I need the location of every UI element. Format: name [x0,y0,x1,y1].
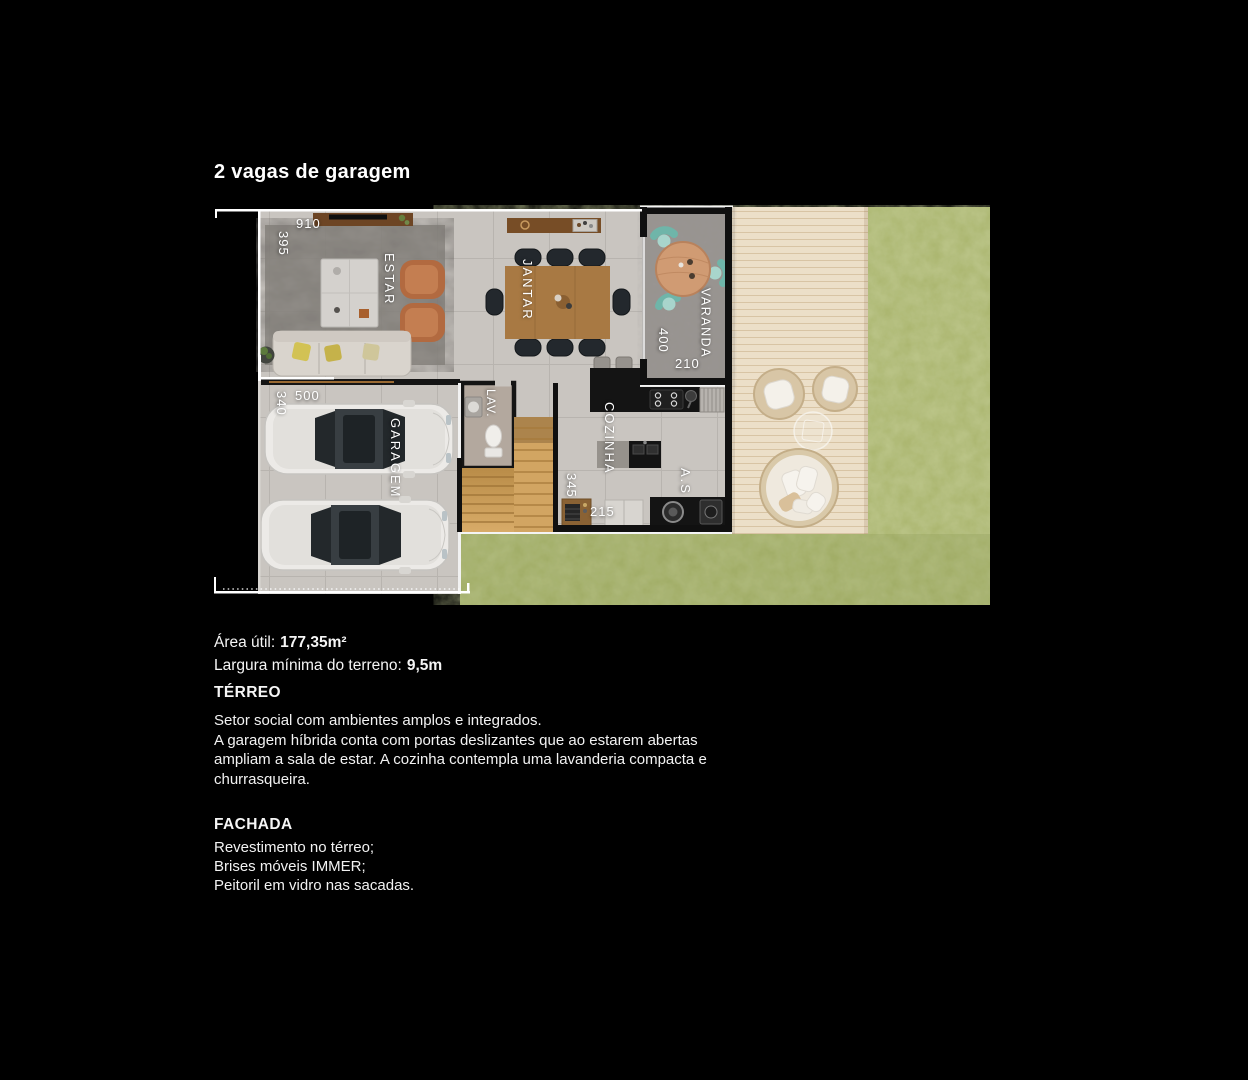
fachada-heading: FACHADA [214,816,634,834]
fachada-item-3: Peitoril em vidro nas sacadas. [214,876,634,895]
terrain-line: Largura mínima do terreno: 9,5m [214,654,442,677]
terrain-label: Largura mínima do terreno: [214,654,402,677]
room-label-cozinha: COZINHA [603,402,616,475]
page-title: 2 vagas de garagem [214,161,411,184]
dim-215: 215 [590,505,615,518]
terreo-paragraph-2: A garagem híbrida conta com portas desli… [214,731,746,790]
area-value: 177,35m² [280,631,346,654]
room-label-varanda: VARANDA [699,288,712,358]
room-label-estar: ESTAR [383,253,396,305]
dim-910: 910 [296,217,321,230]
dim-500: 500 [295,389,320,402]
terreo-heading: TÉRREO [214,684,746,702]
plan-details: Área útil: 177,35m² Largura mínima do te… [214,631,442,677]
terrain-value: 9,5m [407,654,442,677]
dim-210: 210 [675,357,700,370]
dim-400: 400 [657,328,670,353]
area-label: Área útil: [214,631,275,654]
dim-345: 345 [565,473,578,498]
fachada-item-1: Revestimento no térreo; [214,838,634,857]
room-label-garagem: GARAGEM [389,418,402,498]
floor-plan: ESTAR JANTAR VARANDA GARAGEM LAV. COZINH… [213,205,990,605]
brochure-page: 2 vagas de garagem [0,0,1248,1080]
room-label-servico: A.S [679,468,692,495]
fachada-section: FACHADA Revestimento no térreo; Brises m… [214,816,634,895]
fachada-item-2: Brises móveis IMMER; [214,857,634,876]
dim-340: 340 [275,391,288,416]
room-label-lav: LAV. [485,389,497,418]
dim-395: 395 [277,231,290,256]
terreo-section: TÉRREO Setor social com ambientes amplos… [214,684,746,789]
area-line: Área útil: 177,35m² [214,631,442,654]
room-label-jantar: JANTAR [521,259,534,321]
terreo-paragraph-1: Setor social com ambientes amplos e inte… [214,711,746,731]
